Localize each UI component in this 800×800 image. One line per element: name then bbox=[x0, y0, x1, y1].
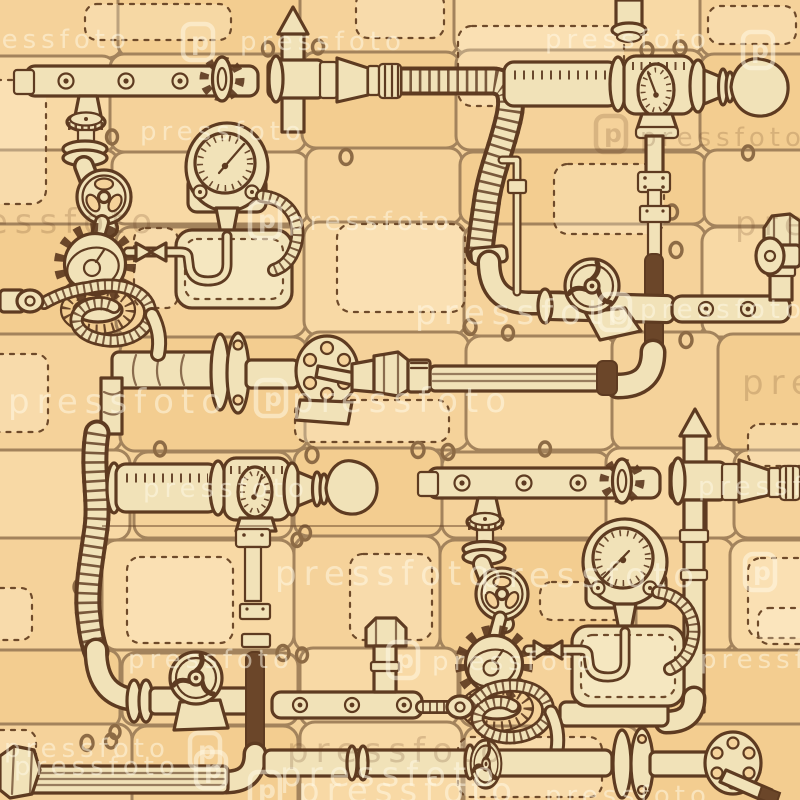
watermark-text: pressfoto bbox=[0, 202, 159, 242]
watermark-text: pressfoto bbox=[292, 381, 513, 421]
svg-text:p: p bbox=[258, 775, 276, 800]
watermark-text: pressfoto bbox=[480, 556, 701, 596]
svg-text:p: p bbox=[604, 119, 622, 148]
collar bbox=[671, 458, 685, 504]
watermark-text: pressfoto bbox=[545, 25, 711, 55]
bar-end-cap bbox=[14, 70, 34, 94]
svg-text:p: p bbox=[753, 557, 771, 586]
watermark-text: pressfoto bbox=[275, 554, 496, 594]
watermark-text: pressfoto bbox=[700, 645, 800, 675]
svg-text:p: p bbox=[264, 383, 282, 412]
watermark-text: pressfoto bbox=[298, 771, 519, 800]
bar-end-cap bbox=[418, 472, 438, 496]
watermark-text: pressfoto bbox=[432, 647, 598, 677]
watermark-text: pressfoto bbox=[698, 472, 800, 502]
drum-gauge bbox=[638, 64, 674, 116]
watermark-text: pressfoto bbox=[545, 781, 711, 800]
svg-text:p: p bbox=[191, 27, 209, 56]
watermark-text: pressfoto bbox=[14, 752, 180, 782]
watermark-text: pressfoto bbox=[240, 27, 406, 57]
collar bbox=[269, 56, 283, 102]
watermark-text: pressfoto bbox=[8, 382, 229, 422]
watermark-text: pressfoto bbox=[128, 645, 294, 675]
watermark-text: pressfoto bbox=[735, 204, 800, 244]
watermark-text: pressfoto bbox=[140, 117, 306, 147]
gear-hub bbox=[84, 260, 100, 276]
watermark-text: pressfoto bbox=[143, 474, 309, 504]
watermark-text: pressfoto bbox=[287, 731, 508, 771]
svg-text:p: p bbox=[751, 35, 769, 64]
svg-text:p: p bbox=[204, 755, 222, 784]
watermark-text: pressfoto bbox=[640, 123, 800, 153]
watermark-text: pressfoto bbox=[742, 363, 800, 403]
watermark-text: pressfoto bbox=[0, 25, 131, 55]
stock-image-preview: pressfoto pressfoto pressfoto pressfoto … bbox=[0, 0, 800, 800]
watermark-text: pressfoto bbox=[640, 295, 800, 325]
svg-text:p: p bbox=[396, 645, 414, 674]
bulb-end bbox=[326, 461, 377, 514]
svg-text:p: p bbox=[608, 297, 626, 326]
watermark-text: pressfoto bbox=[288, 207, 454, 237]
svg-text:p: p bbox=[258, 205, 276, 234]
